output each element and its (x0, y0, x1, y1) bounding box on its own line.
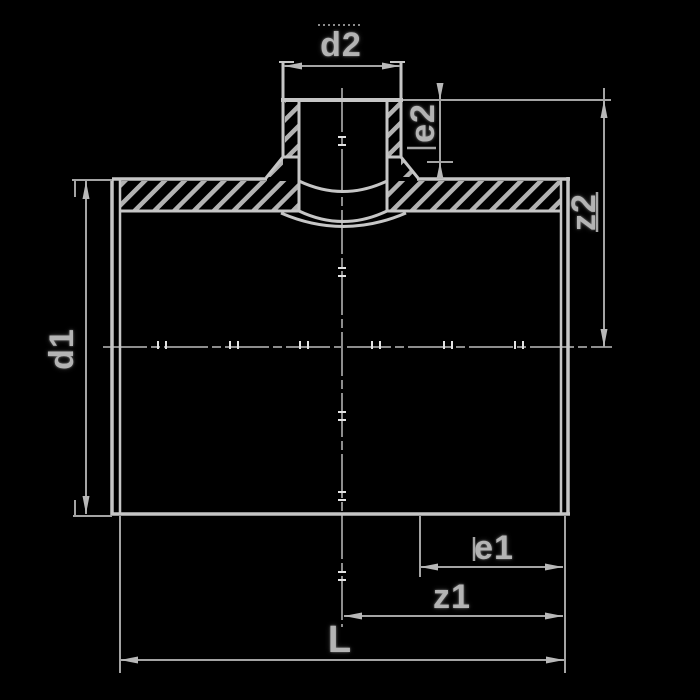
label-e2: e2 (406, 103, 440, 143)
label-z1: z1 (433, 580, 471, 614)
tee-fitting-line-art (0, 0, 700, 700)
label-e1: e1 (474, 531, 514, 565)
dimension-arrowheads (83, 63, 608, 664)
centerlines (103, 88, 612, 627)
label-z2: z2 (567, 193, 601, 231)
label-L: L (328, 621, 352, 659)
technical-drawing-canvas: d2 e2 z2 d1 e1 z1 L (0, 0, 700, 700)
section-hatching (121, 102, 560, 210)
label-d2: d2 (320, 28, 362, 62)
label-d1: d1 (45, 328, 79, 370)
